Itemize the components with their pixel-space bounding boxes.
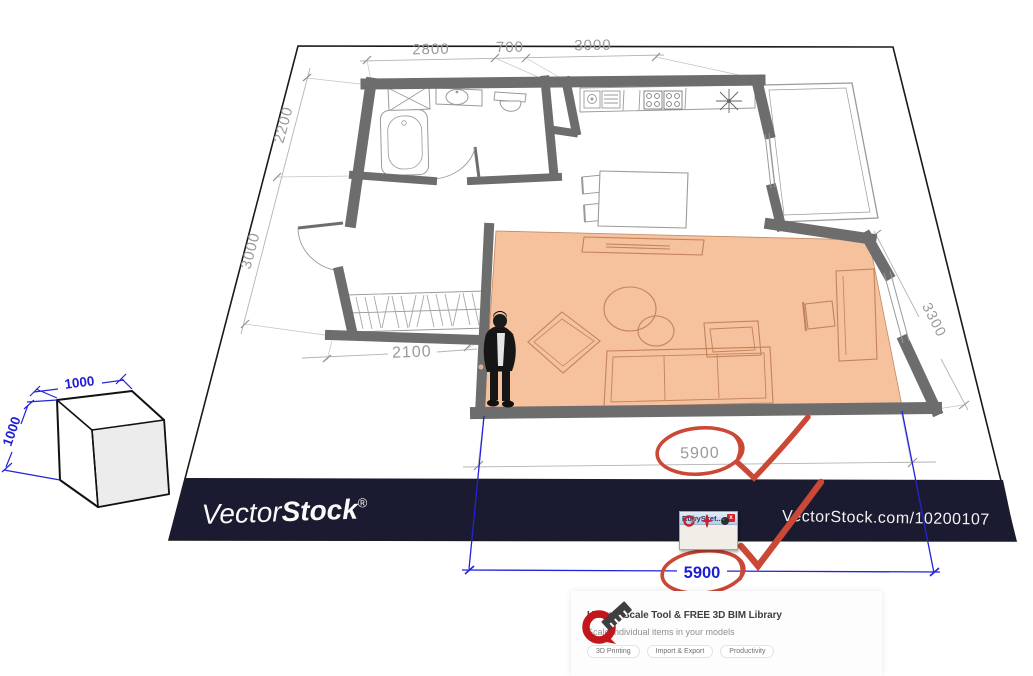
dim-label-2100: 2100 bbox=[392, 343, 432, 361]
dim-label-5900-blue: 5900 bbox=[684, 564, 721, 582]
scale-cube: 1000 1000 bbox=[0, 373, 169, 507]
scale-tool-banner[interactable]: Unique Scale Tool & FREE 3D BIM Library … bbox=[571, 591, 882, 676]
watermark-band: VectorStock® VectorStock.com/10200107 bbox=[169, 478, 1016, 541]
rubysketch-toolbar bbox=[680, 525, 737, 547]
dark-circle-icon[interactable] bbox=[721, 517, 729, 525]
scale-tool-logo bbox=[579, 591, 641, 653]
sink-icon bbox=[436, 88, 482, 106]
cube-width-label: 1000 bbox=[64, 373, 96, 392]
move-arrows-icon[interactable] bbox=[701, 514, 713, 528]
rubysketch-toolbar-icons bbox=[680, 512, 735, 530]
floorplan-canvas: 2800 700 3000 2200 3000 2100 3200 3300 5… bbox=[0, 0, 1033, 676]
dim-label-2800: 2800 bbox=[412, 41, 450, 59]
tag-import-export: Import & Export bbox=[647, 645, 714, 658]
vectorstock-logo: VectorStock® bbox=[201, 493, 368, 530]
dim-label-5900-gray: 5900 bbox=[680, 445, 720, 463]
vectorstock-floorplan-image: 2800 700 3000 2200 3000 2100 3200 3300 5… bbox=[0, 0, 1033, 676]
living-room-highlight bbox=[484, 231, 902, 409]
vectorstock-url: VectorStock.com/10200107 bbox=[782, 508, 990, 529]
dim-label-700: 700 bbox=[496, 39, 524, 56]
bathtub-icon bbox=[380, 109, 429, 175]
washing-machine-icon bbox=[388, 86, 430, 111]
cube-height-label: 1000 bbox=[0, 415, 24, 448]
tag-productivity: Productivity bbox=[720, 645, 774, 658]
rubysketch-window[interactable]: RubySket... x bbox=[679, 511, 738, 550]
dim-label-3000-top: 3000 bbox=[574, 37, 612, 55]
pencil-circle-icon[interactable] bbox=[685, 517, 698, 526]
